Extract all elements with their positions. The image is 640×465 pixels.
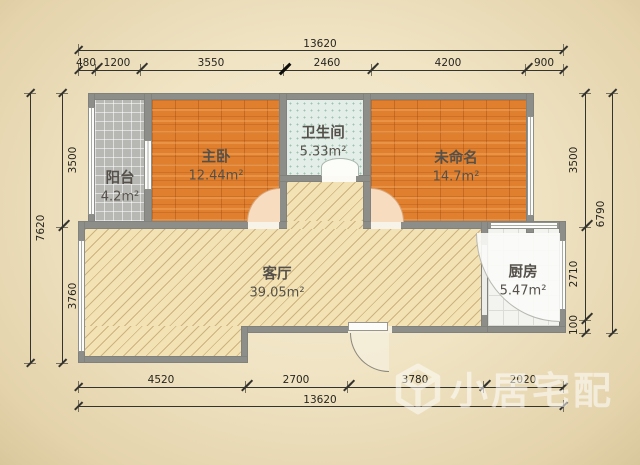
- dim-line: [78, 70, 563, 71]
- room-balcony-floor[interactable]: [95, 100, 144, 221]
- wall-top: [88, 93, 534, 100]
- dim-value: 6790: [595, 201, 607, 228]
- kitchen-door-leaf: [559, 240, 566, 310]
- hallway-floor[interactable]: [287, 182, 363, 221]
- cube-icon: [392, 363, 444, 419]
- watermark: 小居宅配: [392, 363, 614, 419]
- dim-line: [78, 406, 563, 407]
- dim-value: 3760: [67, 283, 79, 310]
- entry-door-leaf: [348, 322, 388, 331]
- window-living-left: [78, 240, 85, 352]
- dim-value: 2460: [314, 57, 341, 69]
- entry-door-arc: [350, 333, 389, 372]
- dim-value: 3780: [402, 374, 429, 386]
- wall-kitchen-bottom: [481, 326, 566, 333]
- dim-value: 900: [534, 57, 554, 69]
- room-living-floor-extension[interactable]: [85, 326, 241, 356]
- dim-value: 2020: [510, 374, 537, 386]
- watermark-text: 小居宅配: [450, 365, 614, 417]
- dim-line: [612, 93, 613, 333]
- dim-line: [78, 50, 563, 51]
- dim-value: 7620: [35, 215, 47, 242]
- dim-value: 3500: [67, 147, 79, 174]
- dim-line: [78, 387, 563, 388]
- window-balcony-left: [88, 107, 95, 215]
- dim-value: 4520: [148, 374, 175, 386]
- dim-value: 4200: [435, 57, 462, 69]
- dim-value: 2700: [283, 374, 310, 386]
- hallway-opening: [287, 221, 363, 229]
- room-living-floor[interactable]: [85, 229, 481, 326]
- window-balcony-bedroom: [144, 140, 152, 190]
- bedroom-door-opening: [248, 221, 279, 229]
- wall-bathroom-unnamed: [363, 93, 371, 229]
- wall-bottom-left: [78, 356, 248, 363]
- dim-value: 13620: [303, 394, 336, 406]
- dim-line: [585, 93, 586, 333]
- bathroom-door-opening: [322, 175, 356, 182]
- dim-value: 1200: [104, 57, 131, 69]
- unnamed-door-opening: [371, 221, 401, 229]
- window-kitchen-top: [490, 222, 558, 229]
- dim-value: 3500: [568, 147, 580, 174]
- dim-value: 2710: [568, 261, 580, 288]
- dim-value: 3550: [198, 57, 225, 69]
- bathroom-door-arc: [321, 158, 359, 176]
- window-unnamed-right: [527, 116, 534, 216]
- dim-value: 13620: [303, 38, 336, 50]
- floorplan-canvas: 阳台 4.2m² 主卧 12.44m² 卫生间 5.33m² 未命名 14.7m…: [0, 0, 640, 465]
- dim-line: [30, 93, 31, 363]
- wall-bedroom-bathroom: [279, 93, 287, 229]
